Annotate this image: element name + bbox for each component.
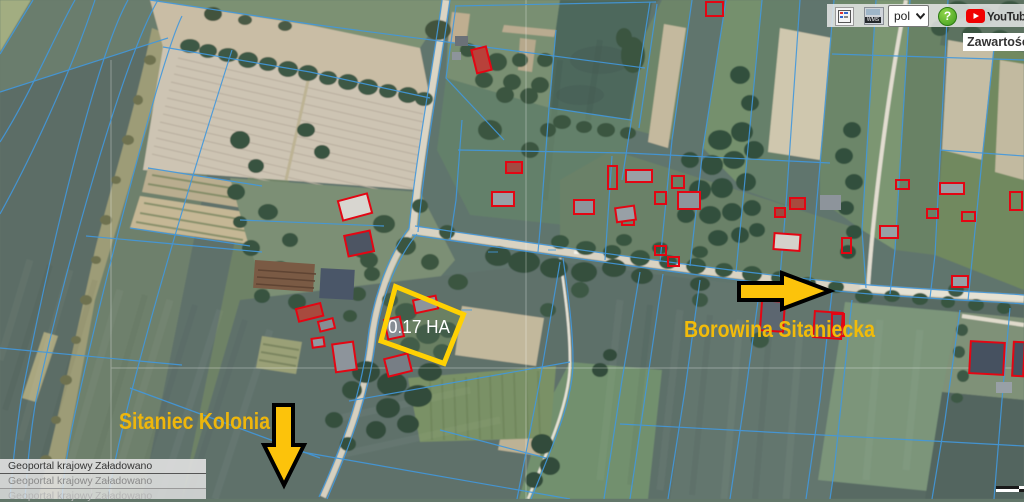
svg-text:Borowina Sitaniecka: Borowina Sitaniecka [684, 316, 875, 342]
svg-text:Sitaniec Kolonia: Sitaniec Kolonia [119, 408, 270, 434]
svg-text:0.17 HA: 0.17 HA [388, 317, 450, 337]
svg-text:YouTube: YouTube [987, 12, 1024, 24]
